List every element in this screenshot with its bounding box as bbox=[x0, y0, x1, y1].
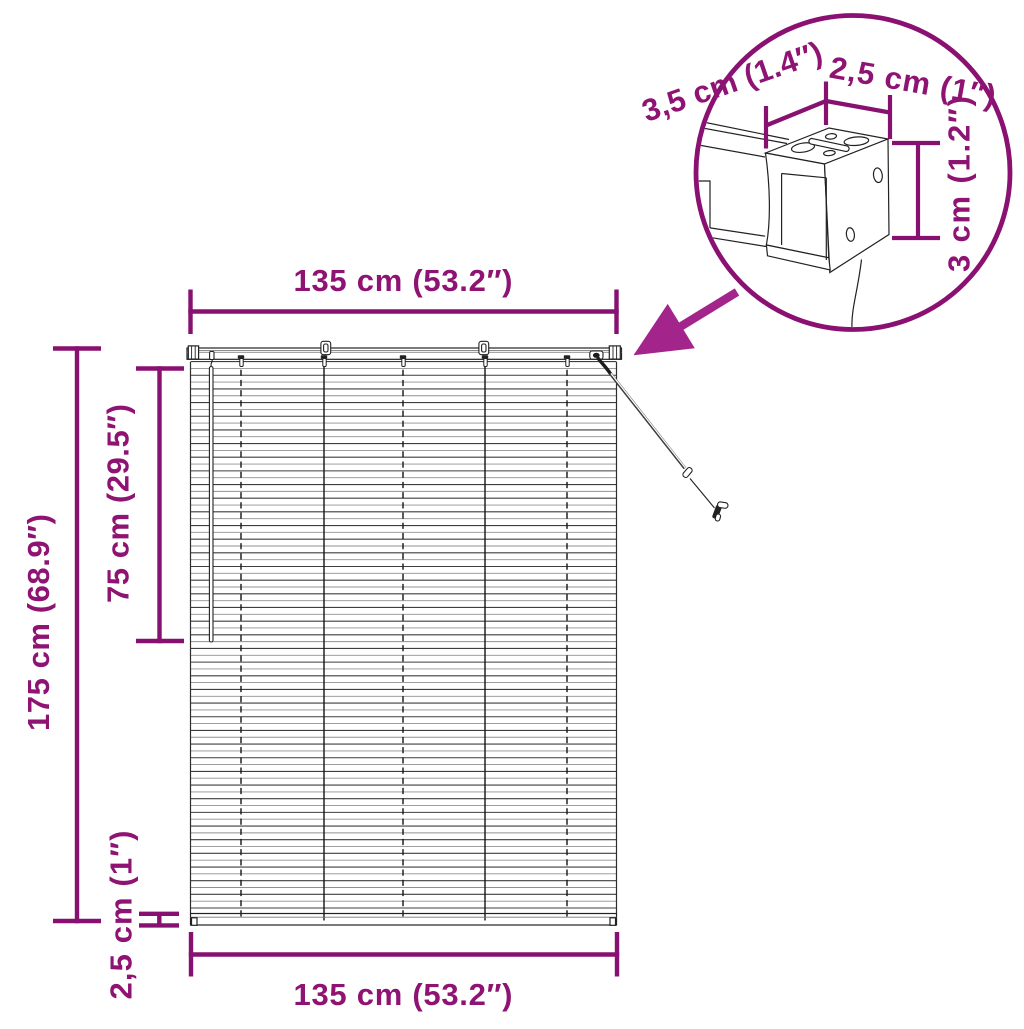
svg-text:3 cm (1.2″): 3 cm (1.2″) bbox=[942, 96, 977, 272]
svg-text:175 cm (68.9″): 175 cm (68.9″) bbox=[21, 514, 56, 731]
svg-text:75 cm (29.5″): 75 cm (29.5″) bbox=[101, 404, 136, 603]
svg-text:135 cm (53.2″): 135 cm (53.2″) bbox=[294, 263, 513, 298]
svg-text:2,5 cm (1″): 2,5 cm (1″) bbox=[104, 831, 139, 1000]
svg-text:135 cm (53.2″): 135 cm (53.2″) bbox=[294, 977, 513, 1012]
